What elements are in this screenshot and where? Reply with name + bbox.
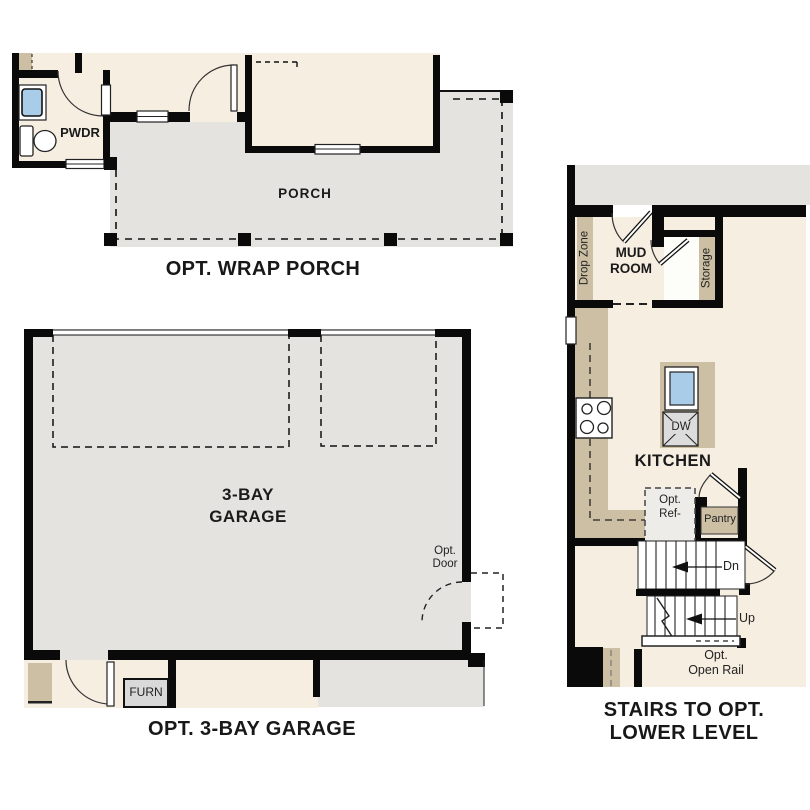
mud-room-label-line2: ROOM: [610, 261, 652, 277]
stairs-title: STAIRS TO OPT. LOWER LEVEL: [604, 699, 764, 745]
furnace-label: FURN: [129, 686, 162, 699]
floorplan-canvas: [0, 0, 810, 810]
mud-room-label-line1: MUD: [610, 245, 652, 261]
cooktop-fixture: [576, 398, 612, 438]
kitchen-label: KITCHEN: [635, 452, 712, 470]
stair-landing-wall: [636, 589, 720, 596]
open-rail-label-line2: Open Rail: [688, 663, 744, 678]
mud-room-label: MUD ROOM: [610, 245, 652, 277]
open-rail-label-line1: Opt.: [688, 648, 744, 663]
opt-door-label-line2: Door: [433, 558, 458, 571]
stairs-down-label: Dn: [723, 559, 739, 573]
floorplan-page: PWDR PORCH OPT. WRAP PORCH 3-BAY GARAGE …: [0, 0, 810, 810]
wrap-porch-plan: [12, 53, 513, 247]
porch-label: PORCH: [278, 186, 332, 201]
pantry-label: Pantry: [704, 513, 736, 525]
stairs-up-label: Up: [739, 611, 755, 625]
island-sink-fixture: [665, 367, 698, 410]
opt-door-label: Opt. Door: [433, 545, 458, 571]
opt-ref-label-line2: Ref-: [659, 508, 681, 522]
open-rail-label: Opt. Open Rail: [688, 648, 744, 677]
opt-door-label-line1: Opt.: [433, 545, 458, 558]
kitchen-window: [566, 317, 576, 344]
stairs-title-line2: LOWER LEVEL: [604, 722, 764, 745]
opt-ref-label: Opt. Ref-: [659, 494, 681, 521]
garage-door-headers: [52, 330, 436, 335]
wrap-porch-title: OPT. WRAP PORCH: [166, 258, 361, 280]
garage-label: 3-BAY GARAGE: [209, 484, 287, 528]
sink-fixture: [19, 85, 46, 120]
garage-label-line2: GARAGE: [209, 506, 287, 528]
garage-title: OPT. 3-BAY GARAGE: [148, 718, 356, 740]
garage-label-line1: 3-BAY: [209, 484, 287, 506]
open-rail: [642, 636, 740, 646]
opt-ref-label-line1: Opt.: [659, 494, 681, 508]
stairs-up-flight: [647, 596, 737, 642]
dishwasher-label: DW: [669, 421, 692, 434]
drop-zone-label: Drop Zone: [579, 231, 592, 285]
stairs-title-line1: STAIRS TO OPT.: [604, 699, 764, 722]
storage-label: Storage: [701, 248, 714, 288]
powder-room-label: PWDR: [60, 126, 100, 141]
